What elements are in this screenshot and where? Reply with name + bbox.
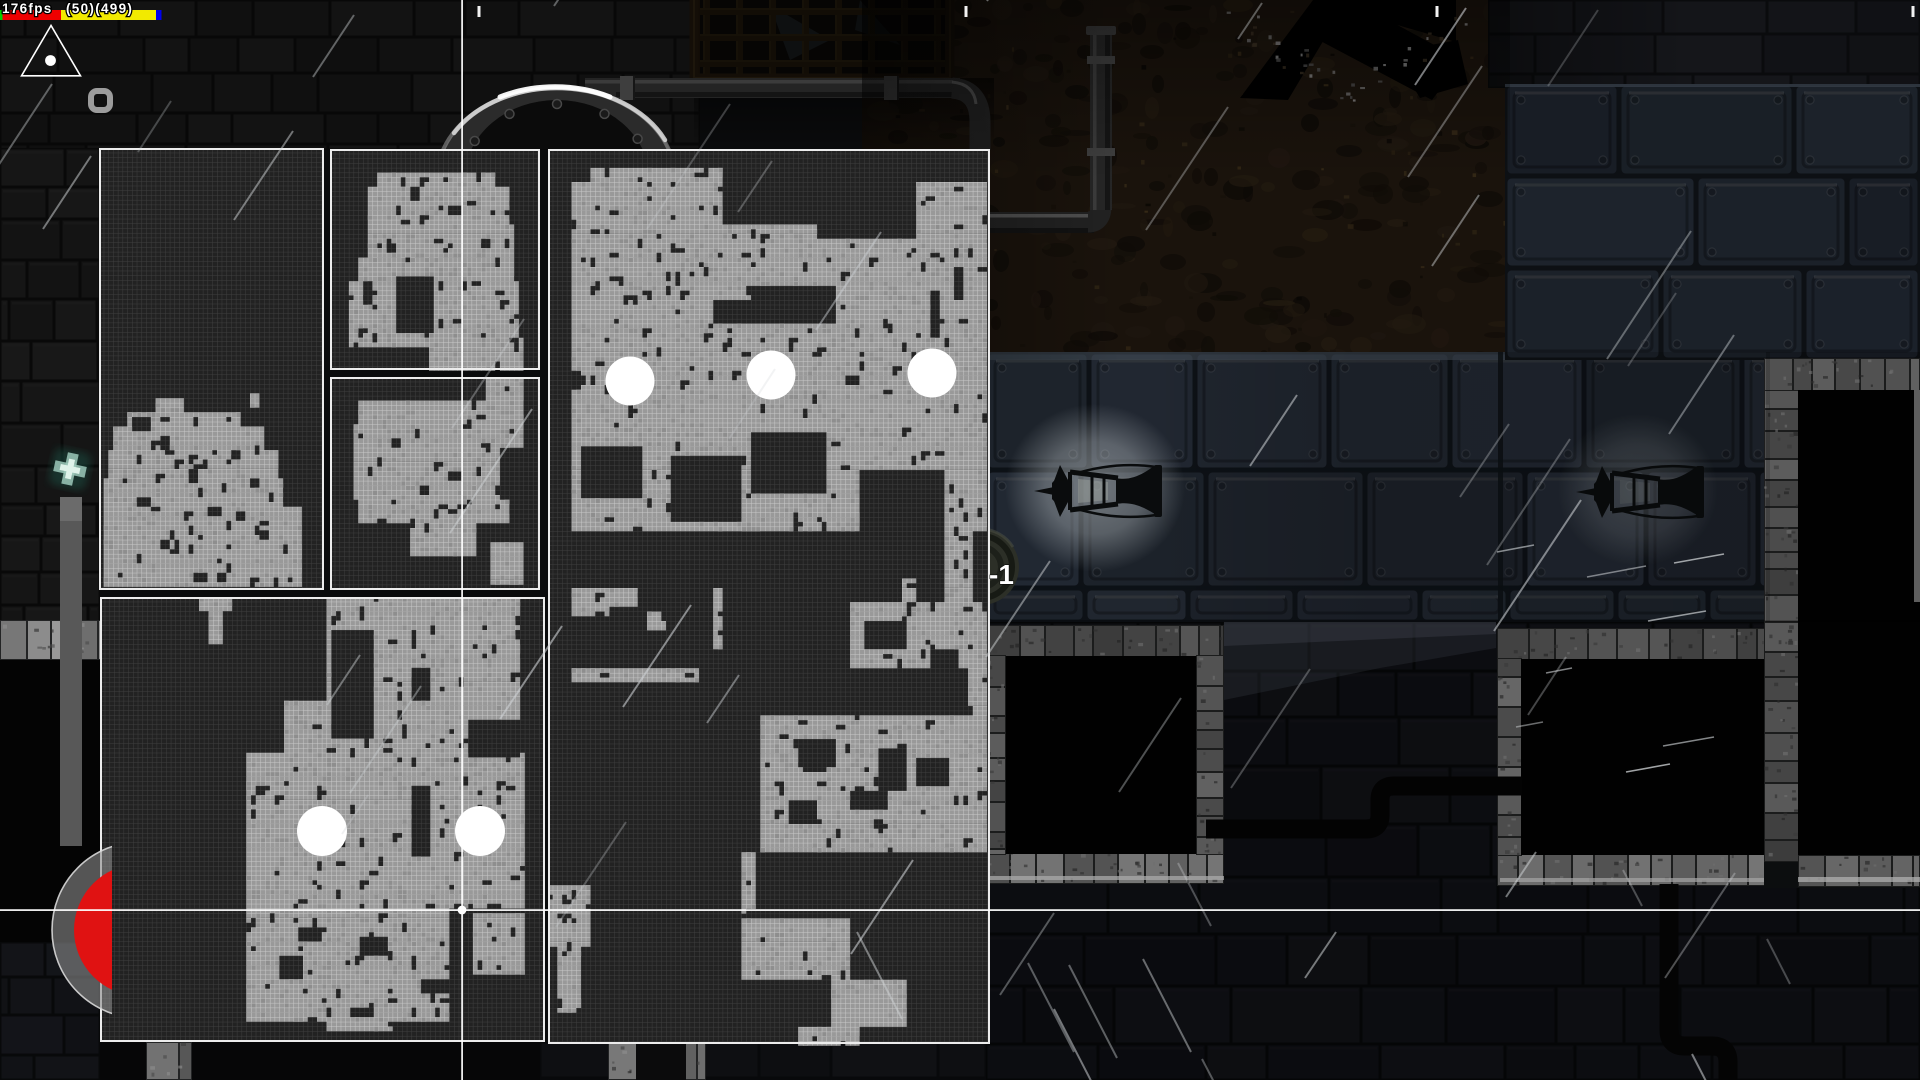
svg-text:(50)(499): (50)(499) [66, 1, 133, 16]
svg-text:176fps: 176fps [2, 1, 53, 16]
svg-text:-1: -1 [989, 559, 1014, 590]
